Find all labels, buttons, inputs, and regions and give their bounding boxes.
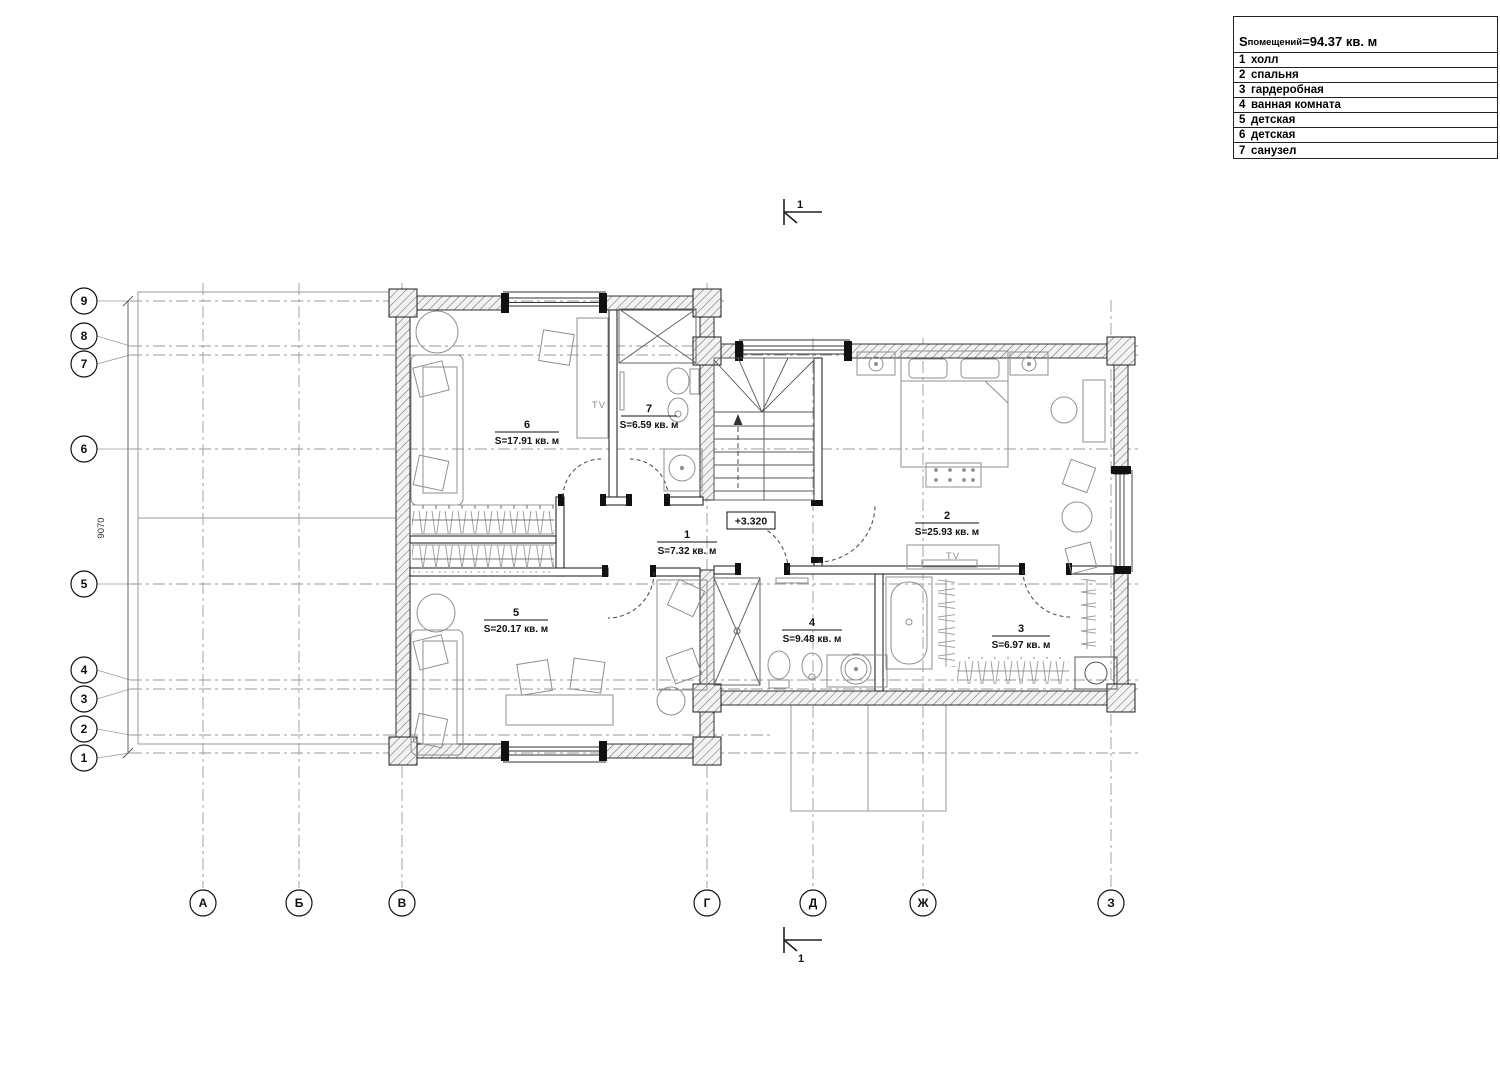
room-label-5: 5 S=20.17 кв. м bbox=[484, 607, 548, 635]
room-label-2: 2 S=25.93 кв. м bbox=[915, 510, 979, 538]
svg-text:3: 3 bbox=[1018, 623, 1024, 635]
axis-label-A: А bbox=[199, 896, 208, 910]
legend-room-name: ванная комната bbox=[1251, 99, 1341, 111]
floor-plan-sheet: 9 8 7 6 5 4 3 2 1 А Б В Г Д Ж З 9070 bbox=[0, 0, 1500, 1086]
legend-room-num: 4 bbox=[1239, 99, 1251, 111]
legend-room-num: 2 bbox=[1239, 69, 1251, 81]
legend-row-7: 7санузел bbox=[1234, 143, 1497, 158]
room-label-3: 3 S=6.97 кв. м bbox=[992, 623, 1051, 651]
svg-text:S=6.59 кв. м: S=6.59 кв. м bbox=[620, 420, 679, 431]
elevation-marker: +3.320 bbox=[727, 512, 775, 529]
fixtures-room4 bbox=[714, 577, 932, 688]
section-label-top: 1 bbox=[797, 199, 803, 211]
window-top-left bbox=[503, 292, 606, 306]
section-marker-top: 1 bbox=[784, 199, 822, 225]
legend-row-1: 1холл bbox=[1234, 53, 1497, 68]
legend-total-value: =94.37 кв. м bbox=[1302, 34, 1377, 49]
legend-room-num: 5 bbox=[1239, 114, 1251, 126]
dimension-9070: 9070 bbox=[96, 296, 133, 758]
legend-room-name: гардеробная bbox=[1251, 84, 1324, 96]
axis-bubble-ZH: Ж bbox=[910, 890, 936, 916]
legend-room-num: 3 bbox=[1239, 84, 1251, 96]
window-top-right bbox=[739, 340, 850, 354]
legend-total-area: Sпомещений=94.37 кв. м bbox=[1234, 17, 1497, 53]
svg-text:S=7.32 кв. м: S=7.32 кв. м bbox=[658, 546, 717, 557]
axis-label-4: 4 bbox=[81, 663, 88, 677]
axis-row-bubbles: 9 8 7 6 5 4 3 2 1 bbox=[71, 288, 97, 771]
room-label-6: 6 S=17.91 кв. м bbox=[495, 419, 559, 447]
axis-bubble-7: 7 bbox=[71, 351, 97, 377]
room-label-1: 1 S=7.32 кв. м bbox=[657, 529, 717, 557]
axis-label-V: В bbox=[398, 896, 407, 910]
door-room5 bbox=[608, 572, 654, 618]
furniture-room6: TV bbox=[411, 311, 608, 505]
axis-label-3: 3 bbox=[81, 692, 88, 706]
legend-row-3: 3гардеробная bbox=[1234, 83, 1497, 98]
axis-bubble-1: 1 bbox=[71, 745, 97, 771]
door-room2 bbox=[818, 505, 875, 562]
axis-bubble-B: Б bbox=[286, 890, 312, 916]
axis-bubble-9: 9 bbox=[71, 288, 97, 314]
axis-bubble-Z: З bbox=[1098, 890, 1124, 916]
legend-total-sub: помещений bbox=[1248, 37, 1302, 49]
legend-row-2: 2спальня bbox=[1234, 68, 1497, 83]
furniture-room2: TV bbox=[857, 351, 1105, 574]
furniture-room3 bbox=[938, 579, 1117, 689]
legend-room-name: спальня bbox=[1251, 69, 1299, 81]
axis-col-bubbles: А Б В Г Д Ж З bbox=[190, 890, 1124, 916]
fixtures-room7 bbox=[619, 309, 702, 491]
door-room3 bbox=[1023, 570, 1070, 617]
axis-bubble-2: 2 bbox=[71, 716, 97, 742]
window-right-wall bbox=[1116, 470, 1132, 572]
axis-label-8: 8 bbox=[81, 329, 88, 343]
axis-label-G: Г bbox=[704, 896, 711, 910]
axis-label-2: 2 bbox=[81, 722, 88, 736]
grid-lines bbox=[130, 283, 1140, 888]
svg-text:6: 6 bbox=[524, 419, 530, 431]
door-room6 bbox=[563, 459, 601, 497]
legend-row-6: 6детская bbox=[1234, 128, 1497, 143]
axis-bubble-G: Г bbox=[694, 890, 720, 916]
room-label-4: 4 S=9.48 кв. м bbox=[782, 617, 842, 645]
axis-label-6: 6 bbox=[81, 442, 88, 456]
legend-room-num: 7 bbox=[1239, 145, 1251, 157]
stairs bbox=[714, 358, 814, 500]
furniture-room5 bbox=[411, 579, 707, 755]
svg-text:7: 7 bbox=[646, 403, 652, 415]
legend-room-name: детская bbox=[1251, 114, 1295, 126]
elevation-value: +3.320 bbox=[735, 516, 768, 528]
svg-text:S=6.97 кв. м: S=6.97 кв. м bbox=[992, 640, 1051, 651]
legend-total-prefix: S bbox=[1239, 34, 1248, 49]
floor-plan-drawing: 9 8 7 6 5 4 3 2 1 А Б В Г Д Ж З 9070 bbox=[0, 0, 1500, 1086]
legend-row-4: 4ванная комната bbox=[1234, 98, 1497, 113]
legend-room-name: детская bbox=[1251, 129, 1295, 141]
svg-text:S=9.48 кв. м: S=9.48 кв. м bbox=[783, 634, 842, 645]
svg-text:S=25.93 кв. м: S=25.93 кв. м bbox=[915, 527, 979, 538]
axis-label-B: Б bbox=[295, 896, 304, 910]
legend-table: Sпомещений=94.37 кв. м 1холл 2спальня 3г… bbox=[1233, 16, 1498, 159]
axis-bubble-V: В bbox=[389, 890, 415, 916]
svg-text:S=20.17 кв. м: S=20.17 кв. м bbox=[484, 624, 548, 635]
axis-label-1: 1 bbox=[81, 751, 88, 765]
axis-bubble-4: 4 bbox=[71, 657, 97, 683]
legend-room-num: 1 bbox=[1239, 54, 1251, 66]
legend-room-num: 6 bbox=[1239, 129, 1251, 141]
axis-bubble-D: Д bbox=[800, 890, 826, 916]
section-label-bottom: 1 bbox=[798, 953, 804, 965]
bed-room5 bbox=[657, 580, 707, 690]
door-room7 bbox=[630, 459, 668, 497]
left-roof-outline bbox=[138, 292, 396, 744]
svg-text:2: 2 bbox=[944, 510, 950, 522]
legend-room-name: санузел bbox=[1251, 145, 1296, 157]
axis-label-ZH: Ж bbox=[917, 896, 929, 910]
svg-text:5: 5 bbox=[513, 607, 519, 619]
svg-text:1: 1 bbox=[684, 529, 690, 541]
bed-room2 bbox=[901, 351, 1008, 467]
axis-bubble-A: А bbox=[190, 890, 216, 916]
tv-label-room6: TV bbox=[592, 400, 606, 411]
section-marker-bottom: 1 bbox=[784, 927, 822, 965]
legend-row-5: 5детская bbox=[1234, 113, 1497, 128]
stairs-up-arrow bbox=[734, 414, 743, 488]
axis-bubble-5: 5 bbox=[71, 571, 97, 597]
axis-label-Z: З bbox=[1107, 896, 1115, 910]
window-bottom-left bbox=[503, 747, 606, 762]
tv-cabinet-room6 bbox=[577, 318, 608, 438]
axis-label-7: 7 bbox=[81, 357, 88, 371]
axis-label-5: 5 bbox=[81, 577, 88, 591]
legend-room-name: холл bbox=[1251, 54, 1278, 66]
axis-bubble-8: 8 bbox=[71, 323, 97, 349]
axis-label-D: Д bbox=[809, 896, 818, 910]
axis-label-9: 9 bbox=[81, 294, 88, 308]
svg-text:4: 4 bbox=[809, 617, 816, 629]
tv-label-room2: TV bbox=[946, 551, 960, 562]
dimension-9070-label: 9070 bbox=[96, 517, 107, 538]
axis-bubble-6: 6 bbox=[71, 436, 97, 462]
axis-bubble-3: 3 bbox=[71, 686, 97, 712]
svg-text:S=17.91 кв. м: S=17.91 кв. м bbox=[495, 436, 559, 447]
